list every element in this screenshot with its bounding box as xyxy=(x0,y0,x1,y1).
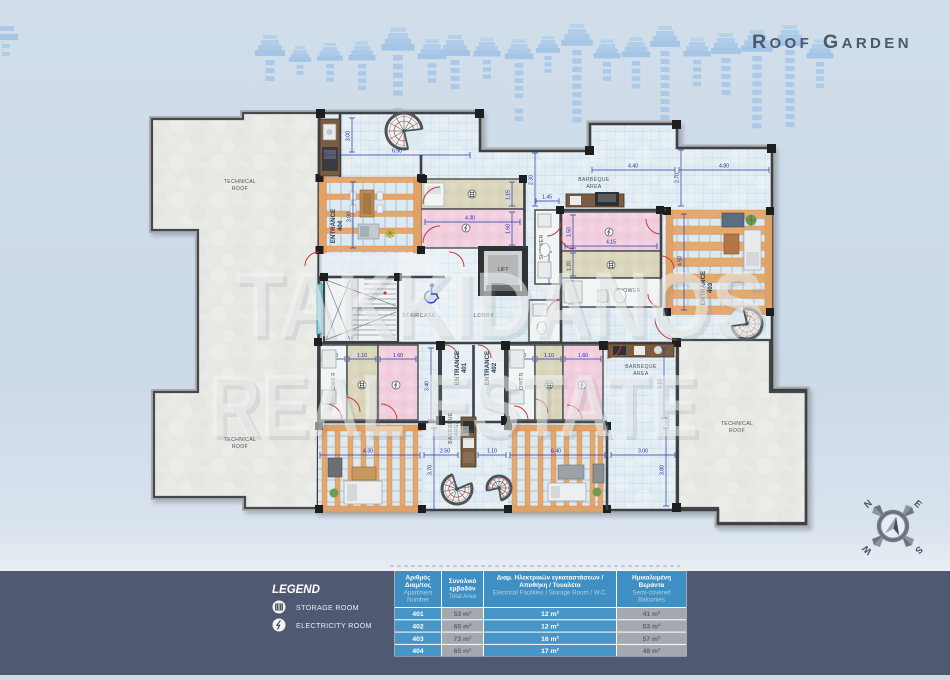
svg-text:Total Area: Total Area xyxy=(449,593,477,600)
svg-text:17 m²: 17 m² xyxy=(541,648,559,655)
svg-text:3.00: 3.00 xyxy=(346,131,352,141)
svg-text:65 m²: 65 m² xyxy=(454,648,472,655)
svg-text:402: 402 xyxy=(412,624,424,631)
svg-text:Διαμ/τος: Διαμ/τος xyxy=(405,582,432,589)
svg-text:3.00: 3.00 xyxy=(347,212,353,222)
svg-text:εμβαδόν: εμβαδόν xyxy=(449,586,476,593)
svg-text:53 m²: 53 m² xyxy=(454,611,472,618)
svg-text:Balconies: Balconies xyxy=(638,597,665,604)
svg-text:16 m²: 16 m² xyxy=(541,636,559,643)
svg-text:Διαμ. Ηλεκτρικών εγκαταστάσεων: Διαμ. Ηλεκτρικών εγκαταστάσεων / xyxy=(497,574,604,582)
svg-text:404: 404 xyxy=(412,648,424,655)
svg-text:4.15: 4.15 xyxy=(606,240,616,246)
svg-text:Αριθμός: Αριθμός xyxy=(406,575,432,582)
svg-text:REAL ESTATE: REAL ESTATE xyxy=(208,356,698,455)
svg-text:Αποθήκη / Τουαλέτα: Αποθήκη / Τουαλέτα xyxy=(519,581,580,589)
svg-text:LEGEND: LEGEND xyxy=(272,584,320,596)
svg-text:3.70: 3.70 xyxy=(428,465,434,475)
svg-text:57 m²: 57 m² xyxy=(643,636,661,643)
svg-text:4.80: 4.80 xyxy=(719,164,729,170)
svg-text:Electrical Facilities / Storag: Electrical Facilities / Storage Room / W… xyxy=(493,590,608,597)
svg-text:Συνολικό: Συνολικό xyxy=(449,577,477,585)
svg-text:ELECTRICITY ROOM: ELECTRICITY ROOM xyxy=(296,621,372,630)
svg-text:ROOF: ROOF xyxy=(729,428,745,434)
svg-text:BARBEQUE: BARBEQUE xyxy=(578,177,610,183)
svg-text:ENTRANCE: ENTRANCE xyxy=(330,209,337,243)
svg-text:401: 401 xyxy=(412,611,424,618)
svg-text:4.30: 4.30 xyxy=(465,216,475,222)
svg-text:Number: Number xyxy=(407,597,429,604)
svg-text:73 m²: 73 m² xyxy=(454,636,472,643)
svg-text:4.40: 4.40 xyxy=(628,164,638,170)
svg-text:Ημικαλυμένη: Ημικαλυμένη xyxy=(632,574,671,582)
svg-text:53 m²: 53 m² xyxy=(643,624,661,631)
svg-text:65 m²: 65 m² xyxy=(454,624,472,631)
svg-text:2.70: 2.70 xyxy=(675,173,681,183)
svg-text:Semi-covered: Semi-covered xyxy=(632,590,671,597)
svg-text:41 m²: 41 m² xyxy=(643,611,661,618)
svg-text:Apartment: Apartment xyxy=(404,590,433,597)
svg-text:STORAGE ROOM: STORAGE ROOM xyxy=(296,603,359,612)
svg-text:ROOF GARDEN: ROOF GARDEN xyxy=(752,31,912,53)
svg-text:6.90: 6.90 xyxy=(392,149,402,155)
svg-text:12 m²: 12 m² xyxy=(541,611,559,618)
svg-text:AREA: AREA xyxy=(586,184,602,190)
svg-text:48 m²: 48 m² xyxy=(643,648,661,655)
svg-text:3.80: 3.80 xyxy=(660,465,666,475)
svg-text:TECHNICAL: TECHNICAL xyxy=(721,421,753,427)
svg-text:1.60: 1.60 xyxy=(506,224,512,234)
svg-text:1.45: 1.45 xyxy=(542,195,552,201)
svg-text:403: 403 xyxy=(412,636,424,643)
svg-text:1.15: 1.15 xyxy=(506,190,512,200)
svg-text:Βεράντα: Βεράντα xyxy=(639,582,665,589)
svg-text:12 m²: 12 m² xyxy=(541,624,559,631)
svg-text:TECHNICAL: TECHNICAL xyxy=(224,179,256,185)
svg-text:404: 404 xyxy=(337,220,344,231)
svg-text:ROOF: ROOF xyxy=(232,186,248,192)
svg-text:2.30: 2.30 xyxy=(529,175,535,185)
svg-text:1.50: 1.50 xyxy=(567,227,573,237)
svg-text:TAKKIDANOS: TAKKIDANOS xyxy=(235,254,765,356)
